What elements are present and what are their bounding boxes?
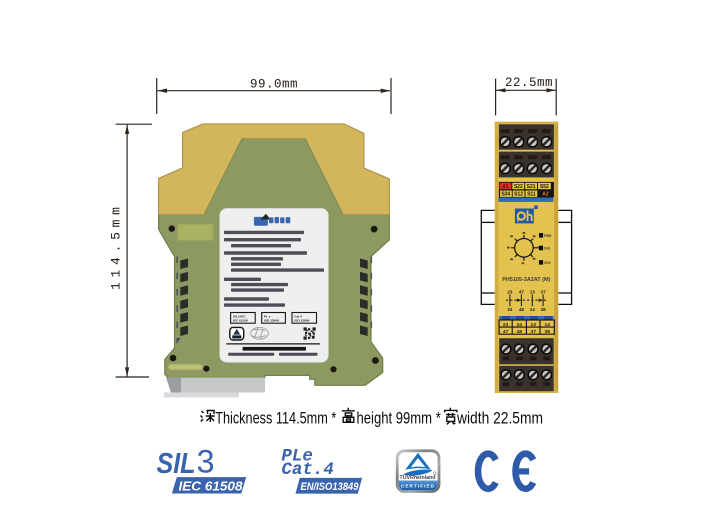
- svg-text:PH5105-3A2AT (M): PH5105-3A2AT (M): [502, 277, 550, 283]
- svg-text:Cat.4: Cat.4: [281, 460, 334, 480]
- svg-text:A1: A1: [502, 184, 509, 190]
- svg-text:38: 38: [541, 307, 547, 312]
- svg-text:S21: S21: [527, 184, 536, 190]
- svg-text:99.0mm: 99.0mm: [250, 78, 298, 92]
- svg-text:37: 37: [541, 289, 547, 294]
- svg-text:TÜVRheinland: TÜVRheinland: [400, 474, 436, 481]
- svg-text:48: 48: [519, 307, 525, 312]
- svg-text:A2: A2: [542, 192, 549, 198]
- svg-text:S11: S11: [527, 192, 536, 198]
- svg-text:14: 14: [530, 307, 536, 312]
- svg-text:SIL: SIL: [157, 448, 196, 480]
- svg-text:width 22.5mm: width 22.5mm: [456, 410, 543, 428]
- svg-text:EN/ISO13849: EN/ISO13849: [301, 481, 359, 493]
- svg-text:3: 3: [197, 444, 215, 480]
- svg-text:114.5mm: 114.5mm: [109, 204, 124, 290]
- svg-text:ISO 13849: ISO 13849: [294, 319, 309, 323]
- svg-text:S12: S12: [514, 192, 523, 198]
- svg-text:IEC 61508: IEC 61508: [233, 319, 248, 323]
- svg-text:Thickness 114.5mm *: Thickness 114.5mm *: [215, 410, 337, 428]
- svg-text:CH1: CH1: [544, 247, 551, 251]
- svg-text:ISO 13849: ISO 13849: [264, 319, 279, 323]
- svg-text:24: 24: [507, 307, 513, 312]
- svg-text:S52: S52: [540, 184, 549, 190]
- svg-text:47: 47: [519, 289, 525, 294]
- svg-text:S22: S22: [514, 184, 523, 190]
- svg-text:height 99mm *: height 99mm *: [357, 410, 442, 428]
- svg-text:CH2: CH2: [544, 261, 551, 265]
- svg-text:22.5mm: 22.5mm: [505, 76, 553, 90]
- svg-text:13: 13: [530, 289, 536, 294]
- svg-text:IEC 61508: IEC 61508: [179, 478, 244, 493]
- svg-text:23: 23: [507, 289, 513, 294]
- svg-text:CERTIFIED: CERTIFIED: [401, 484, 435, 489]
- svg-text:PWR: PWR: [544, 234, 552, 238]
- svg-text:S34: S34: [501, 192, 510, 198]
